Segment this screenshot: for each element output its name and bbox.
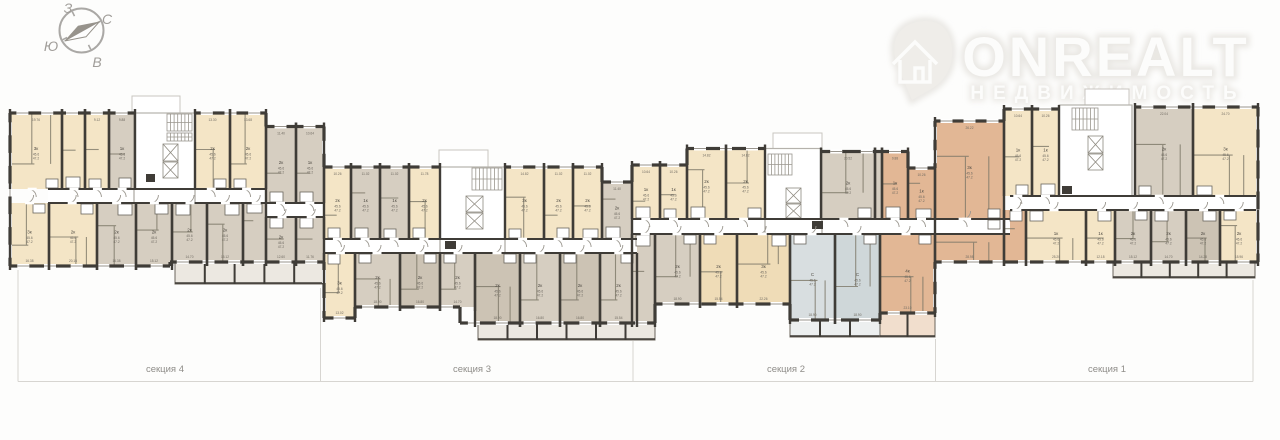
svg-text:18.90: 18.90 bbox=[854, 313, 862, 317]
svg-text:47.2: 47.2 bbox=[245, 157, 251, 161]
svg-text:1к: 1к bbox=[644, 187, 649, 192]
svg-text:47.2: 47.2 bbox=[1053, 242, 1059, 246]
svg-text:47.2: 47.2 bbox=[1015, 158, 1021, 162]
svg-text:1к: 1к bbox=[893, 180, 898, 185]
svg-text:3к: 3к bbox=[27, 230, 32, 235]
svg-text:20.52: 20.52 bbox=[844, 157, 852, 161]
svg-text:2к: 2к bbox=[495, 283, 500, 288]
svg-text:2к: 2к bbox=[114, 230, 119, 235]
svg-text:47.2: 47.2 bbox=[555, 209, 561, 213]
svg-text:47.2: 47.2 bbox=[1236, 242, 1242, 246]
svg-text:2к: 2к bbox=[455, 275, 460, 280]
svg-text:1к: 1к bbox=[919, 189, 924, 194]
svg-text:47.2: 47.2 bbox=[186, 238, 192, 242]
svg-text:47.2: 47.2 bbox=[26, 240, 32, 244]
svg-text:47.2: 47.2 bbox=[715, 275, 721, 279]
svg-text:16.38: 16.38 bbox=[113, 259, 121, 263]
svg-text:2к: 2к bbox=[716, 264, 721, 269]
svg-text:3к: 3к bbox=[1223, 147, 1228, 152]
svg-text:2к: 2к bbox=[743, 179, 748, 184]
svg-text:13.30: 13.30 bbox=[209, 118, 217, 122]
svg-text:47.2: 47.2 bbox=[494, 294, 500, 298]
svg-text:1к: 1к bbox=[1098, 231, 1103, 236]
svg-text:47.2: 47.2 bbox=[809, 283, 815, 287]
svg-text:15.54: 15.54 bbox=[615, 316, 623, 320]
svg-text:2к: 2к bbox=[1166, 231, 1171, 236]
svg-text:2к: 2к bbox=[223, 228, 228, 233]
svg-text:47.2: 47.2 bbox=[703, 189, 709, 193]
svg-text:14.82: 14.82 bbox=[742, 154, 750, 158]
svg-text:2к: 2к bbox=[1131, 231, 1136, 236]
svg-text:47.2: 47.2 bbox=[1222, 157, 1228, 161]
svg-text:2к: 2к bbox=[210, 146, 215, 151]
svg-text:9.88: 9.88 bbox=[119, 118, 125, 122]
svg-text:47.2: 47.2 bbox=[33, 157, 39, 161]
svg-text:2к: 2к bbox=[418, 275, 423, 280]
svg-text:47.2: 47.2 bbox=[374, 286, 380, 290]
svg-text:18.90: 18.90 bbox=[809, 313, 817, 317]
svg-text:47.2: 47.2 bbox=[209, 157, 215, 161]
svg-text:2к: 2к bbox=[71, 230, 76, 235]
svg-text:11.76: 11.76 bbox=[306, 255, 314, 259]
svg-text:47.2: 47.2 bbox=[742, 189, 748, 193]
svg-text:10.26: 10.26 bbox=[334, 172, 342, 176]
svg-text:1к: 1к bbox=[671, 187, 676, 192]
svg-text:2к: 2к bbox=[335, 198, 340, 203]
svg-text:4к: 4к bbox=[905, 269, 910, 274]
svg-text:секция 4: секция 4 bbox=[146, 364, 184, 375]
svg-text:9.12: 9.12 bbox=[94, 118, 100, 122]
svg-text:11.02: 11.02 bbox=[584, 172, 592, 176]
svg-text:10.64: 10.64 bbox=[642, 170, 650, 174]
svg-text:11.40: 11.40 bbox=[613, 187, 621, 191]
svg-text:47.2: 47.2 bbox=[454, 286, 460, 290]
svg-text:С: С bbox=[102, 11, 113, 27]
svg-text:12.60: 12.60 bbox=[277, 255, 285, 259]
svg-text:18.90: 18.90 bbox=[674, 297, 682, 301]
svg-text:1к: 1к bbox=[1043, 148, 1048, 153]
svg-text:16.38: 16.38 bbox=[26, 259, 34, 263]
svg-text:2к: 2к bbox=[615, 206, 620, 211]
svg-text:3к: 3к bbox=[337, 281, 342, 286]
svg-text:20.16: 20.16 bbox=[69, 259, 77, 263]
svg-text:19.76: 19.76 bbox=[32, 118, 40, 122]
svg-text:47.2: 47.2 bbox=[845, 191, 851, 195]
svg-text:47.2: 47.2 bbox=[918, 199, 924, 203]
svg-text:47.2: 47.2 bbox=[614, 216, 620, 220]
svg-text:14.70: 14.70 bbox=[186, 255, 194, 259]
svg-text:47.2: 47.2 bbox=[1165, 242, 1171, 246]
svg-text:47.2: 47.2 bbox=[421, 209, 427, 213]
svg-text:В: В bbox=[92, 54, 101, 70]
svg-text:2к: 2к bbox=[1162, 147, 1167, 152]
svg-text:47.2: 47.2 bbox=[854, 283, 860, 287]
svg-text:47.2: 47.2 bbox=[1200, 242, 1206, 246]
svg-text:2к: 2к bbox=[279, 160, 284, 165]
svg-text:22.26: 22.26 bbox=[760, 297, 768, 301]
svg-text:47.2: 47.2 bbox=[391, 209, 397, 213]
svg-text:секция 1: секция 1 bbox=[1088, 364, 1126, 375]
svg-text:47.2: 47.2 bbox=[674, 275, 680, 279]
svg-text:47.2: 47.2 bbox=[1130, 242, 1136, 246]
svg-text:3к: 3к bbox=[761, 264, 766, 269]
svg-text:1к: 1к bbox=[392, 198, 397, 203]
svg-text:47.2: 47.2 bbox=[278, 170, 284, 174]
svg-text:2к: 2к bbox=[1237, 231, 1242, 236]
svg-text:15.12: 15.12 bbox=[1129, 255, 1137, 259]
svg-text:11.02: 11.02 bbox=[391, 172, 399, 176]
svg-text:47.2: 47.2 bbox=[151, 240, 157, 244]
svg-text:24.70: 24.70 bbox=[1222, 112, 1230, 116]
svg-text:47.2: 47.2 bbox=[577, 294, 583, 298]
svg-text:10.64: 10.64 bbox=[1014, 114, 1022, 118]
svg-text:47.2: 47.2 bbox=[336, 291, 342, 295]
svg-text:14.70: 14.70 bbox=[454, 300, 462, 304]
svg-text:2к: 2к bbox=[246, 146, 251, 151]
svg-text:1к: 1к bbox=[120, 146, 125, 151]
svg-text:10.26: 10.26 bbox=[918, 173, 926, 177]
svg-text:18.90: 18.90 bbox=[494, 316, 502, 320]
svg-text:47.2: 47.2 bbox=[966, 176, 972, 180]
svg-text:10.64: 10.64 bbox=[306, 132, 314, 136]
svg-text:2к: 2к bbox=[1201, 231, 1206, 236]
svg-text:2к: 2к bbox=[538, 283, 543, 288]
svg-text:14.82: 14.82 bbox=[703, 154, 711, 158]
svg-text:26.22: 26.22 bbox=[966, 126, 974, 130]
svg-text:1к: 1к bbox=[308, 160, 313, 165]
svg-text:47.2: 47.2 bbox=[537, 294, 543, 298]
svg-text:3к: 3к bbox=[522, 198, 527, 203]
svg-text:2к: 2к bbox=[846, 180, 851, 185]
svg-text:ONREALT: ONREALT bbox=[962, 25, 1250, 88]
svg-text:З: З bbox=[64, 0, 73, 16]
svg-text:2к: 2к bbox=[152, 230, 157, 235]
svg-text:2к: 2к bbox=[422, 198, 427, 203]
svg-text:14.28: 14.28 bbox=[1199, 255, 1207, 259]
svg-text:16.80: 16.80 bbox=[576, 316, 584, 320]
svg-text:2к: 2к bbox=[375, 275, 380, 280]
svg-text:47.2: 47.2 bbox=[334, 209, 340, 213]
svg-text:3к: 3к bbox=[34, 146, 39, 151]
svg-text:47.2: 47.2 bbox=[643, 198, 649, 202]
svg-text:15.12: 15.12 bbox=[150, 259, 158, 263]
svg-text:47.2: 47.2 bbox=[307, 170, 313, 174]
svg-text:15.12: 15.12 bbox=[221, 255, 229, 259]
svg-text:47.2: 47.2 bbox=[278, 245, 284, 249]
svg-text:47.2: 47.2 bbox=[584, 209, 590, 213]
svg-text:секция 2: секция 2 bbox=[767, 364, 805, 375]
svg-text:47.2: 47.2 bbox=[904, 279, 910, 283]
svg-text:47.2: 47.2 bbox=[1161, 157, 1167, 161]
svg-text:2к: 2к bbox=[616, 283, 621, 288]
svg-text:47.2: 47.2 bbox=[521, 209, 527, 213]
svg-text:23.10: 23.10 bbox=[904, 306, 912, 310]
svg-text:11.78: 11.78 bbox=[421, 172, 429, 176]
svg-text:47.2: 47.2 bbox=[113, 240, 119, 244]
svg-text:1к: 1к bbox=[1016, 148, 1021, 153]
svg-text:12.18: 12.18 bbox=[1097, 255, 1105, 259]
svg-text:11.02: 11.02 bbox=[362, 172, 370, 176]
svg-text:2к: 2к bbox=[704, 179, 709, 184]
svg-text:47.2: 47.2 bbox=[362, 209, 368, 213]
svg-text:2к: 2к bbox=[187, 228, 192, 233]
svg-text:2к: 2к bbox=[675, 264, 680, 269]
svg-text:Ю: Ю bbox=[44, 38, 58, 54]
svg-text:28.98: 28.98 bbox=[966, 255, 974, 259]
svg-text:1к: 1к bbox=[1054, 231, 1059, 236]
svg-text:15.54: 15.54 bbox=[715, 297, 723, 301]
svg-text:3к: 3к bbox=[967, 165, 972, 170]
svg-text:47.2: 47.2 bbox=[417, 286, 423, 290]
svg-text:47.2: 47.2 bbox=[1097, 242, 1103, 246]
svg-text:1к: 1к bbox=[363, 198, 368, 203]
svg-text:14.70: 14.70 bbox=[1165, 255, 1173, 259]
svg-text:47.2: 47.2 bbox=[760, 275, 766, 279]
svg-text:47.2: 47.2 bbox=[119, 157, 125, 161]
svg-text:11.02: 11.02 bbox=[555, 172, 563, 176]
svg-text:2к: 2к bbox=[279, 235, 284, 240]
svg-text:16.80: 16.80 bbox=[416, 300, 424, 304]
svg-text:16.80: 16.80 bbox=[536, 316, 544, 320]
svg-text:47.2: 47.2 bbox=[670, 198, 676, 202]
svg-text:22.04: 22.04 bbox=[1160, 112, 1168, 116]
svg-text:47.2: 47.2 bbox=[70, 240, 76, 244]
svg-text:47.2: 47.2 bbox=[222, 238, 228, 242]
svg-text:47.2: 47.2 bbox=[1042, 158, 1048, 162]
svg-text:15.96: 15.96 bbox=[1235, 255, 1243, 259]
svg-text:10.26: 10.26 bbox=[670, 170, 678, 174]
svg-text:47.2: 47.2 bbox=[892, 191, 898, 195]
svg-text:2к: 2к bbox=[556, 198, 561, 203]
svg-text:секция 3: секция 3 bbox=[453, 364, 491, 375]
svg-text:13.02: 13.02 bbox=[336, 311, 344, 315]
svg-text:14.82: 14.82 bbox=[521, 172, 529, 176]
svg-text:18.90: 18.90 bbox=[374, 300, 382, 304]
svg-text:2к: 2к bbox=[578, 283, 583, 288]
svg-text:9.88: 9.88 bbox=[892, 157, 898, 161]
svg-text:13.68: 13.68 bbox=[244, 118, 252, 122]
svg-text:2к: 2к bbox=[585, 198, 590, 203]
svg-text:47.2: 47.2 bbox=[615, 294, 621, 298]
svg-text:10.26: 10.26 bbox=[1042, 114, 1050, 118]
svg-text:11.40: 11.40 bbox=[277, 132, 285, 136]
svg-text:25.20: 25.20 bbox=[1052, 255, 1060, 259]
